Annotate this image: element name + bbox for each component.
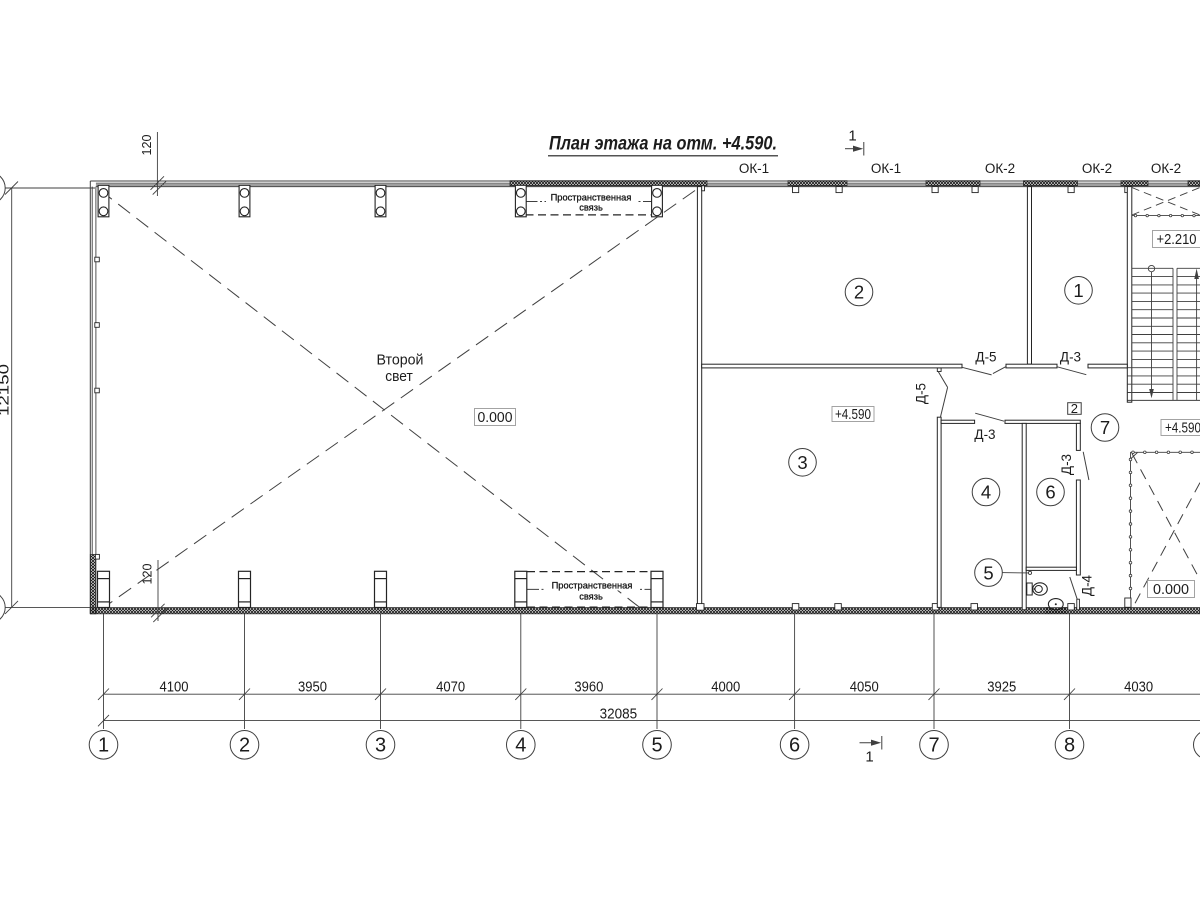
svg-text:120: 120 <box>139 135 154 156</box>
svg-text:3925: 3925 <box>987 678 1016 695</box>
svg-text:Д-3: Д-3 <box>1060 350 1081 365</box>
svg-text:1: 1 <box>1073 280 1083 301</box>
svg-text:Д-3: Д-3 <box>1059 454 1074 475</box>
svg-text:Пространственная: Пространственная <box>551 193 632 203</box>
svg-text:+2.210: +2.210 <box>1157 232 1197 248</box>
svg-text:Д-5: Д-5 <box>975 350 996 365</box>
svg-text:4070: 4070 <box>436 678 465 695</box>
svg-text:связь: связь <box>579 202 603 212</box>
svg-text:+4.590: +4.590 <box>835 407 871 423</box>
svg-text:ОК-1: ОК-1 <box>739 161 769 176</box>
svg-text:32085: 32085 <box>600 705 638 722</box>
svg-text:4100: 4100 <box>160 678 189 695</box>
svg-text:7: 7 <box>928 735 939 757</box>
svg-text:5: 5 <box>983 562 993 583</box>
svg-text:4: 4 <box>981 482 991 503</box>
svg-text:Второй: Второй <box>377 352 424 369</box>
svg-text:8: 8 <box>1064 735 1075 757</box>
svg-text:0.000: 0.000 <box>1153 582 1189 598</box>
svg-text:6: 6 <box>1045 482 1055 503</box>
svg-text:2: 2 <box>1071 401 1078 416</box>
svg-text:свет: свет <box>385 368 413 385</box>
svg-text:4: 4 <box>515 735 526 757</box>
svg-text:1: 1 <box>848 128 856 145</box>
svg-text:4030: 4030 <box>1124 678 1153 695</box>
svg-text:6: 6 <box>789 735 800 757</box>
svg-text:3960: 3960 <box>574 678 603 695</box>
svg-text:План этажа на отм. +4.590.: План этажа на отм. +4.590. <box>549 134 777 155</box>
svg-text:2: 2 <box>239 735 250 757</box>
svg-text:ОК-2: ОК-2 <box>985 161 1015 176</box>
svg-text:Д-5: Д-5 <box>914 383 929 404</box>
svg-text:3950: 3950 <box>298 678 327 695</box>
svg-text:2: 2 <box>854 282 864 303</box>
svg-text:5: 5 <box>651 735 662 757</box>
svg-text:4050: 4050 <box>850 678 879 695</box>
svg-text:12150: 12150 <box>0 364 13 416</box>
svg-text:7: 7 <box>1100 417 1110 438</box>
svg-text:ОК-2: ОК-2 <box>1151 161 1181 176</box>
svg-text:ОК-1: ОК-1 <box>871 161 901 176</box>
svg-text:ОК-2: ОК-2 <box>1082 161 1112 176</box>
svg-text:Пространственная: Пространственная <box>552 581 633 591</box>
svg-text:3: 3 <box>375 735 386 757</box>
svg-text:3: 3 <box>797 452 807 473</box>
svg-text:0.000: 0.000 <box>478 410 513 426</box>
svg-text:120: 120 <box>140 564 155 585</box>
svg-text:связь: связь <box>579 592 603 602</box>
svg-text:+4.590: +4.590 <box>1165 421 1200 437</box>
svg-text:1: 1 <box>98 735 109 757</box>
svg-text:Д-4: Д-4 <box>1080 574 1095 596</box>
svg-text:4000: 4000 <box>711 678 740 695</box>
svg-text:Д-3: Д-3 <box>974 427 995 442</box>
svg-text:1: 1 <box>865 749 873 766</box>
